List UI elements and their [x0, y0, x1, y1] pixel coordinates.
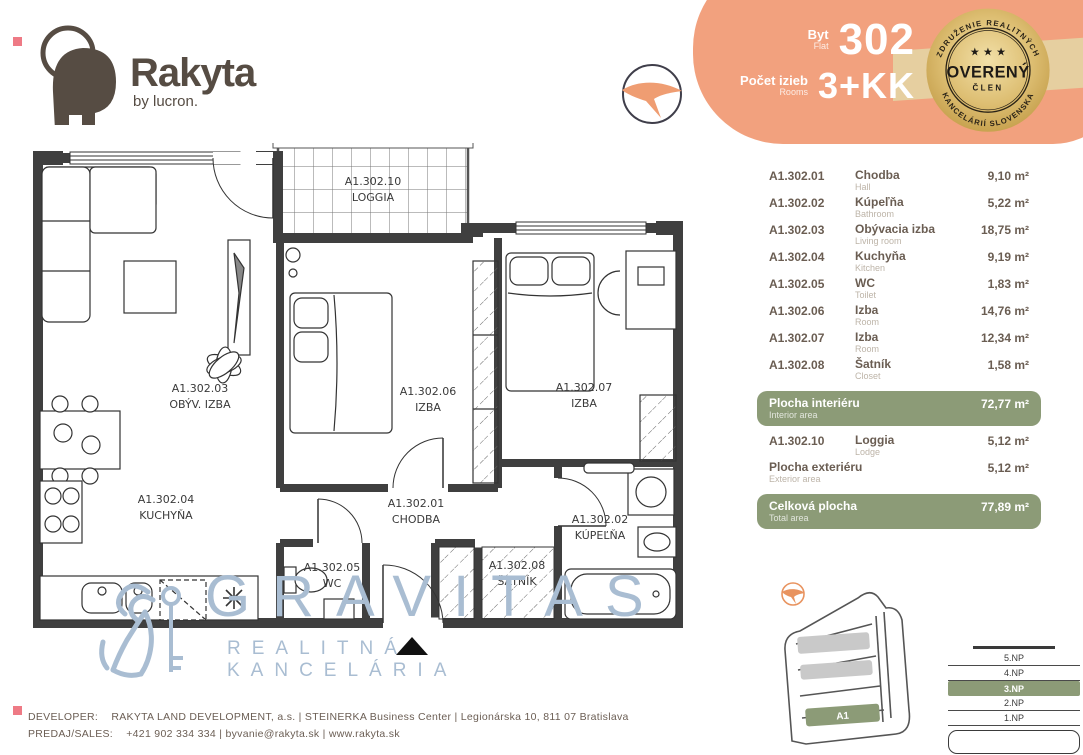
floor-4np: 4.NP: [948, 666, 1080, 681]
label-wc-code: A1.302.05: [304, 561, 361, 574]
label-kitchen-code: A1.302.04: [138, 493, 195, 506]
label-bathroom-code: A1.302.02: [572, 513, 629, 526]
label-hall-name: CHODBA: [392, 513, 441, 526]
area-row: A1.302.03 Obývacia izbaLiving room 18,75…: [757, 222, 1041, 249]
bedroom06-door: [393, 438, 443, 488]
row-value: 9,10 m²: [988, 169, 1029, 183]
floor-1np: 1.NP: [948, 711, 1080, 726]
row-value: 5,12 m²: [988, 461, 1029, 475]
rooms-label-en: Rooms: [740, 88, 808, 98]
label-wc-name: WC: [323, 577, 342, 590]
interior-value: 72,77 m²: [981, 397, 1029, 411]
row-code: A1.302.05: [769, 277, 855, 291]
row-name: IzbaRoom: [855, 331, 981, 354]
row-name-en: Exterior area: [769, 475, 988, 484]
logo-tree-icon: [53, 48, 116, 125]
rooms-label-sk: Počet izieb: [740, 74, 808, 88]
registration-mark-top: [13, 37, 22, 46]
flat-number-row: Byt Flat 302: [700, 18, 915, 62]
floorstack-roof-line: [973, 646, 1055, 649]
row-code: A1.302.01: [769, 169, 855, 183]
row-value: 14,76 m²: [981, 304, 1029, 318]
registration-mark-bottom: [13, 706, 22, 715]
badge-member-text: ČLEN: [973, 84, 1004, 93]
floorstack-base-box: [948, 730, 1080, 754]
area-row: A1.302.02 KúpeľňaBathroom 5,22 m²: [757, 195, 1041, 222]
bedroom06-furniture: [286, 248, 498, 483]
area-row: A1.302.04 KuchyňaKitchen 9,19 m²: [757, 249, 1041, 276]
wc-door: [318, 499, 362, 543]
row-value: 9,19 m²: [988, 250, 1029, 264]
row-name: Obývacia izbaLiving room: [855, 223, 981, 246]
area-row: A1.302.05 WCToilet 1,83 m²: [757, 276, 1041, 303]
flat-info: Byt Flat 302 Počet izieb Rooms 3+KK: [700, 18, 915, 110]
area-row: A1.302.01 ChodbaHall 9,10 m²: [757, 168, 1041, 195]
total-area-band: Celková plochaTotal area 77,89 m²: [757, 494, 1041, 529]
floor-3np-active: 3.NP: [948, 681, 1080, 696]
row-name: KúpeľňaBathroom: [855, 196, 988, 219]
floor-5np: 5.NP: [948, 651, 1080, 666]
entrance-arrow-icon: [396, 637, 428, 655]
loggia-door: [213, 152, 273, 218]
certified-member-badge: ZDRUŽENIE REALITNÝCH KANCELÁRIÍ SLOVENSK…: [915, 3, 1061, 143]
row-name: KuchyňaKitchen: [855, 250, 988, 273]
row-name: ChodbaHall: [855, 169, 988, 192]
label-living-name: OBÝV. IZBA: [169, 398, 231, 411]
row-code: A1.302.07: [769, 331, 855, 345]
row-value: 5,12 m²: [988, 434, 1029, 448]
floor-plan: A1.302.10 LOGGIA A1.302.03 OBÝV. IZBA A1…: [28, 143, 690, 660]
flat-number: 302: [839, 18, 915, 62]
row-code: A1.302.02: [769, 196, 855, 210]
row-code: A1.302.03: [769, 223, 855, 237]
badge-stars-icon: ★ ★ ★: [970, 46, 1006, 58]
rooms-row: Počet izieb Rooms 3+KK: [700, 68, 915, 104]
developer-label: DEVELOPER:: [28, 711, 98, 723]
rooms-value: 3+KK: [818, 68, 915, 104]
row-name-en: Room: [855, 345, 981, 354]
exterior-area-row: Plocha exteriéruExterior area 5,12 m²: [757, 460, 1041, 487]
row-name-en: Hall: [855, 183, 988, 192]
row-value: 1,58 m²: [988, 358, 1029, 372]
label-closet-code: A1.302.08: [489, 559, 546, 572]
label-kitchen-name: KUCHYŇA: [139, 509, 193, 522]
floor-2np: 2.NP: [948, 696, 1080, 711]
row-name-en: Closet: [855, 372, 988, 381]
sales-label: PREDAJ/SALES:: [28, 728, 113, 740]
total-label: Celková plochaTotal area: [769, 500, 857, 523]
row-value: 18,75 m²: [981, 223, 1029, 237]
mini-compass-icon: [782, 583, 805, 605]
rakyta-logo: Rakyta by lucron.: [26, 20, 261, 125]
developer-text: RAKYTA LAND DEVELOPMENT, a.s. | STEINERK…: [111, 711, 628, 723]
label-living-code: A1.302.03: [172, 382, 229, 395]
site-plan: A1: [772, 578, 922, 748]
building-floors: A1: [797, 632, 880, 727]
row-name-en: Bathroom: [855, 210, 988, 219]
row-value: 5,22 m²: [988, 196, 1029, 210]
label-izba07-code: A1.302.07: [556, 381, 613, 394]
row-name: IzbaRoom: [855, 304, 981, 327]
label-loggia-code: A1.302.10: [345, 175, 402, 188]
row-code: A1.302.08: [769, 358, 855, 372]
brand-byline: by lucron.: [133, 93, 198, 110]
row-code: A1.302.10: [769, 434, 855, 448]
area-row: A1.302.06 IzbaRoom 14,76 m²: [757, 303, 1041, 330]
area-table: A1.302.01 ChodbaHall 9,10 m² A1.302.02 K…: [757, 168, 1041, 536]
bedroom07-furniture: [506, 251, 676, 461]
footer-line1: DEVELOPER: RAKYTA LAND DEVELOPMENT, a.s.…: [28, 709, 629, 726]
row-code: A1.302.04: [769, 250, 855, 264]
floor-selector: 5.NP 4.NP 3.NP 2.NP 1.NP: [948, 646, 1080, 754]
area-row: A1.302.08 ŠatníkCloset 1,58 m²: [757, 357, 1041, 384]
row-code: A1.302.06: [769, 304, 855, 318]
floorplan-sheet: Rakyta by lucron. Byt Flat 302 Počet izi…: [0, 0, 1083, 755]
label-closet-name: ŠATNÍK: [497, 575, 537, 588]
row-value: 1,83 m²: [988, 277, 1029, 291]
row-name-en: Lodge: [855, 448, 988, 457]
footer: DEVELOPER: RAKYTA LAND DEVELOPMENT, a.s.…: [28, 709, 629, 744]
loggia-row: A1.302.10 LoggiaLodge 5,12 m²: [757, 433, 1041, 460]
label-loggia-name: LOGGIA: [352, 191, 395, 204]
row-name-en: Kitchen: [855, 264, 988, 273]
interior-label-en: Interior area: [769, 411, 860, 420]
fridge-snowflake-icon: [223, 587, 245, 609]
sales-text: +421 902 334 334 | byvanie@rakyta.sk | w…: [126, 728, 400, 740]
row-name: WCToilet: [855, 277, 988, 300]
row-name: ŠatníkCloset: [855, 358, 988, 381]
interior-label: Plocha interiéruInterior area: [769, 397, 860, 420]
interior-area-band: Plocha interiéruInterior area 72,77 m²: [757, 391, 1041, 426]
row-value: 12,34 m²: [981, 331, 1029, 345]
flat-label-en: Flat: [808, 42, 829, 52]
label-bathroom-name: KÚPEĽŇA: [575, 529, 626, 542]
label-izba07-name: IZBA: [571, 397, 597, 410]
footer-line2: PREDAJ/SALES: +421 902 334 334 | byvanie…: [28, 726, 629, 743]
north-compass-icon: [612, 60, 692, 132]
row-name: LoggiaLodge: [855, 434, 988, 457]
wc-furniture: [284, 567, 354, 619]
area-row: A1.302.07 IzbaRoom 12,34 m²: [757, 330, 1041, 357]
row-name-en: Toilet: [855, 291, 988, 300]
label-izba06-code: A1.302.06: [400, 385, 457, 398]
row-name: Plocha exteriéruExterior area: [769, 461, 988, 484]
label-hall-code: A1.302.01: [388, 497, 445, 510]
total-label-en: Total area: [769, 514, 857, 523]
label-izba06-name: IZBA: [415, 401, 441, 414]
flat-label-sk: Byt: [808, 28, 829, 42]
active-block-label: A1: [836, 711, 850, 723]
total-value: 77,89 m²: [981, 500, 1029, 514]
row-name-en: Room: [855, 318, 981, 327]
brand-name: Rakyta: [130, 51, 257, 95]
living-room-furniture: [40, 167, 250, 484]
row-name-en: Living room: [855, 237, 981, 246]
badge-center-text: OVERENÝ: [946, 63, 1029, 82]
